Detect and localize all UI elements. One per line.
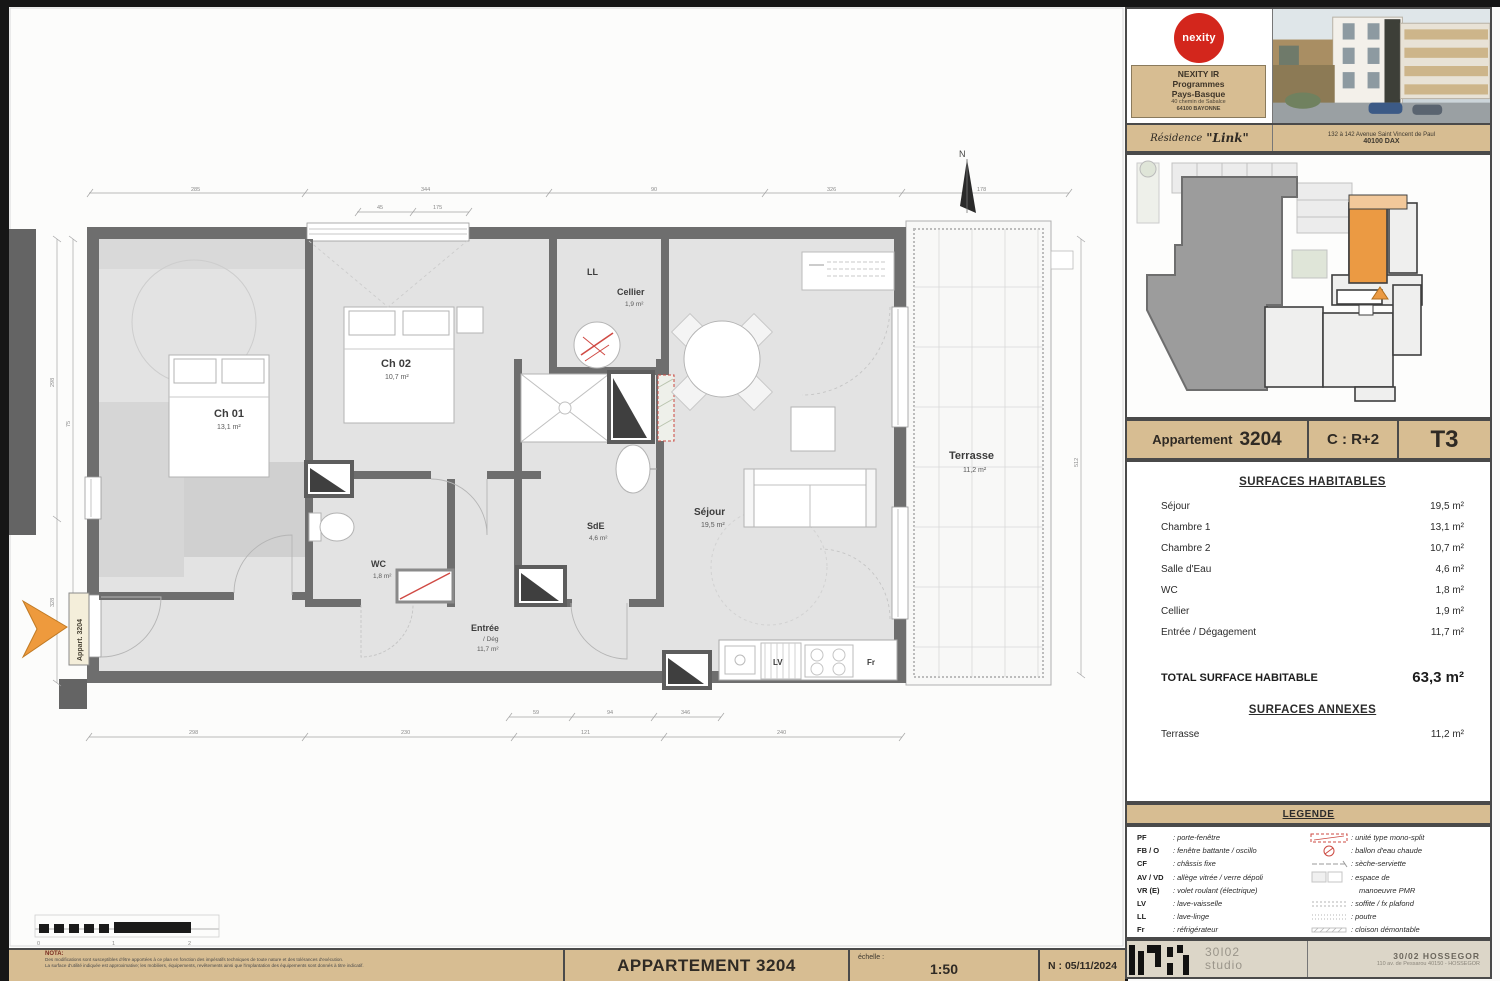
scale-value: 1:50 bbox=[930, 961, 958, 977]
legend-panel: PF:porte-fenêtre FB / O:fenêtre battante… bbox=[1125, 825, 1492, 939]
svg-text:75: 75 bbox=[66, 421, 72, 427]
developer-block: nexity NEXITY IR Programmes Pays-Basque … bbox=[1127, 9, 1273, 123]
svg-text:Entrée: Entrée bbox=[471, 623, 499, 633]
svg-text:1,8 m²: 1,8 m² bbox=[373, 573, 392, 580]
scale-label: échelle : bbox=[858, 954, 884, 961]
svg-text:59: 59 bbox=[533, 710, 539, 716]
highlighted-unit bbox=[1349, 203, 1387, 283]
surfaces-title: SURFACES HABITABLES bbox=[1161, 476, 1464, 488]
annexes-title: SURFACES ANNEXES bbox=[1161, 704, 1464, 716]
water-heater-icon bbox=[1307, 845, 1351, 857]
svg-text:298: 298 bbox=[189, 730, 198, 736]
studio-logo-cell: 30I02 studio bbox=[1127, 941, 1308, 977]
frame-left bbox=[0, 0, 9, 981]
residence-name-cell: Résidence "Link" bbox=[1127, 125, 1273, 151]
svg-text:45: 45 bbox=[377, 205, 383, 211]
studio-logo-icon bbox=[1127, 943, 1197, 975]
developer-name: NEXITY IR bbox=[1132, 69, 1265, 79]
surfaces-table: Séjour19,5 m² Chambre 113,1 m² Chambre 2… bbox=[1161, 496, 1464, 643]
sidebar: nexity NEXITY IR Programmes Pays-Basque … bbox=[1125, 7, 1492, 979]
frame-top bbox=[0, 0, 1500, 7]
apartment-type: T3 bbox=[1430, 426, 1458, 454]
studio-name: 30I02 studio bbox=[1205, 946, 1243, 972]
svg-text:LV: LV bbox=[773, 658, 783, 667]
sheet-title: APPARTEMENT 3204 bbox=[617, 956, 796, 976]
surface-row: Entrée / Dégagement11,7 m² bbox=[1161, 622, 1464, 643]
legend-symbols: :unité type mono-split :ballon d'eau cha… bbox=[1307, 831, 1484, 937]
svg-text:328: 328 bbox=[50, 598, 56, 607]
apartment-label: Appartement bbox=[1152, 432, 1232, 447]
siteplan-drawing bbox=[1127, 155, 1490, 417]
surface-row: Salle d'Eau4,6 m² bbox=[1161, 559, 1464, 580]
svg-text:0: 0 bbox=[37, 941, 40, 947]
svg-text:Ch 02: Ch 02 bbox=[381, 358, 411, 370]
office-address: 110 av. de Pessarou 40150 - HOSSEGOR bbox=[1377, 961, 1480, 967]
floorplan-area: Ch 01 13,1 m² Ch 02 10,7 m² LL Cellier 1… bbox=[9, 7, 1125, 948]
residence-label: Résidence bbox=[1150, 133, 1202, 144]
svg-text:11,7 m²: 11,7 m² bbox=[477, 646, 499, 653]
date-cell: N : 05/11/2024 bbox=[1040, 950, 1125, 981]
total-surface-label: TOTAL SURFACE HABITABLE bbox=[1161, 672, 1318, 684]
svg-text:13,1 m²: 13,1 m² bbox=[217, 424, 241, 431]
floorplan-drawing: Ch 01 13,1 m² Ch 02 10,7 m² LL Cellier 1… bbox=[9, 7, 1125, 948]
entry-marker: Appart. 3204 bbox=[23, 593, 89, 665]
north-arrow-icon: N bbox=[959, 149, 976, 213]
svg-text:Appart. 3204: Appart. 3204 bbox=[77, 619, 84, 661]
nota-block: NOTA: Des modifications sont susceptible… bbox=[9, 950, 565, 981]
residence-address-cell: 132 à 142 Avenue Saint Vincent de Paul 4… bbox=[1273, 125, 1490, 151]
svg-text:94: 94 bbox=[607, 710, 613, 716]
surface-row: Cellier1,9 m² bbox=[1161, 601, 1464, 622]
svg-text:240: 240 bbox=[777, 730, 786, 736]
total-surface-value: 63,3 m² bbox=[1412, 669, 1464, 686]
svg-text:121: 121 bbox=[581, 730, 590, 736]
svg-text:175: 175 bbox=[433, 205, 442, 211]
svg-text:LL: LL bbox=[587, 267, 598, 277]
svg-text:230: 230 bbox=[401, 730, 410, 736]
office-name: 30/02 HOSSEGOR bbox=[1393, 951, 1480, 961]
scale-bar: 0 1 2 bbox=[35, 915, 219, 947]
building-photo bbox=[1273, 9, 1490, 123]
developer-header: nexity NEXITY IR Programmes Pays-Basque … bbox=[1125, 7, 1492, 123]
annex-row: Terrasse11,2 m² bbox=[1161, 724, 1464, 745]
apartment-bar: Appartement 3204 C : R+2 T3 bbox=[1125, 419, 1492, 460]
towel-dryer-icon bbox=[1307, 860, 1351, 868]
water-heater bbox=[574, 322, 620, 368]
surface-row: WC1,8 m² bbox=[1161, 580, 1464, 601]
svg-text:Terrasse: Terrasse bbox=[949, 450, 994, 462]
partition-icon bbox=[1307, 926, 1351, 934]
legend-abbreviations: PF:porte-fenêtre FB / O:fenêtre battante… bbox=[1137, 831, 1307, 937]
nota-line-2: La surface d'utilité indiquée est approx… bbox=[45, 963, 559, 969]
svg-text:2: 2 bbox=[188, 941, 191, 947]
sheet-title-cell: APPARTEMENT 3204 bbox=[565, 950, 850, 981]
svg-text:10,7 m²: 10,7 m² bbox=[385, 374, 409, 381]
red-dashed-marker bbox=[658, 375, 674, 441]
svg-text:178: 178 bbox=[977, 187, 986, 193]
svg-text:WC: WC bbox=[371, 559, 386, 569]
apartment-number: 3204 bbox=[1239, 429, 1281, 451]
legend-title: LEGENDE bbox=[1283, 809, 1335, 820]
soffit-icon bbox=[1307, 900, 1351, 908]
svg-text:N: N bbox=[959, 149, 966, 159]
svg-text:1,9 m²: 1,9 m² bbox=[625, 301, 644, 308]
common-wall bbox=[9, 229, 36, 535]
annexes-table: Terrasse11,2 m² bbox=[1161, 724, 1464, 745]
developer-address2: 64100 BAYONNE bbox=[1132, 106, 1265, 113]
siteplan-thumbnail bbox=[1125, 153, 1492, 419]
developer-address-box: NEXITY IR Programmes Pays-Basque 40 chem… bbox=[1131, 65, 1266, 118]
total-surface-row: TOTAL SURFACE HABITABLE 63,3 m² bbox=[1161, 669, 1464, 686]
svg-text:11,2 m²: 11,2 m² bbox=[963, 467, 987, 474]
residence-strip: Résidence "Link" 132 à 142 Avenue Saint … bbox=[1125, 123, 1492, 153]
svg-text:Cellier: Cellier bbox=[617, 287, 645, 297]
developer-line3: Pays-Basque bbox=[1132, 89, 1265, 99]
svg-text:/ Dég: / Dég bbox=[483, 636, 499, 643]
studio-office-cell: 30/02 HOSSEGOR 110 av. de Pessarou 40150… bbox=[1308, 941, 1490, 977]
svg-text:4,6 m²: 4,6 m² bbox=[589, 535, 608, 542]
svg-text:326: 326 bbox=[827, 187, 836, 193]
surface-row: Chambre 210,7 m² bbox=[1161, 538, 1464, 559]
apartment-type-cell: T3 bbox=[1399, 421, 1490, 458]
svg-text:Fr: Fr bbox=[867, 658, 875, 667]
svg-text:344: 344 bbox=[421, 187, 430, 193]
date-value: N : 05/11/2024 bbox=[1048, 960, 1117, 972]
apartment-level-cell: C : R+2 bbox=[1309, 421, 1399, 458]
svg-text:Séjour: Séjour bbox=[694, 507, 725, 518]
svg-text:Ch 01: Ch 01 bbox=[214, 408, 244, 420]
svg-text:285: 285 bbox=[191, 187, 200, 193]
beam-icon bbox=[1307, 913, 1351, 921]
residence-address2: 40100 DAX bbox=[1363, 138, 1399, 145]
svg-text:1: 1 bbox=[112, 941, 115, 947]
apartment-level: C : R+2 bbox=[1327, 431, 1379, 448]
mono-split-icon bbox=[1307, 833, 1351, 843]
svg-text:298: 298 bbox=[50, 378, 56, 387]
legend-header: LEGENDE bbox=[1125, 803, 1492, 825]
apartment-name-cell: Appartement 3204 bbox=[1127, 421, 1309, 458]
title-block: NOTA: Des modifications sont susceptible… bbox=[9, 948, 1125, 981]
floorplan-sheet: { "sheet": { "nota": { "title": "NOTA:",… bbox=[0, 0, 1500, 981]
studio-footer: 30I02 studio 30/02 HOSSEGOR 110 av. de P… bbox=[1125, 939, 1492, 979]
scale-cell: échelle : 1:50 bbox=[850, 950, 1040, 981]
building-photo-illustration bbox=[1273, 9, 1490, 123]
svg-text:90: 90 bbox=[651, 187, 657, 193]
surface-row: Chambre 113,1 m² bbox=[1161, 517, 1464, 538]
svg-text:346: 346 bbox=[681, 710, 690, 716]
developer-line2: Programmes bbox=[1132, 79, 1265, 89]
svg-text:19,5 m²: 19,5 m² bbox=[701, 522, 725, 529]
pmr-icon bbox=[1307, 871, 1351, 883]
residence-name: "Link" bbox=[1206, 131, 1249, 145]
nexity-logo: nexity bbox=[1174, 13, 1224, 63]
surfaces-panel: SURFACES HABITABLES Séjour19,5 m² Chambr… bbox=[1125, 460, 1492, 803]
surface-row: Séjour19,5 m² bbox=[1161, 496, 1464, 517]
nexity-logo-text: nexity bbox=[1182, 32, 1216, 44]
svg-text:512: 512 bbox=[1074, 458, 1080, 467]
svg-text:SdE: SdE bbox=[587, 521, 605, 531]
